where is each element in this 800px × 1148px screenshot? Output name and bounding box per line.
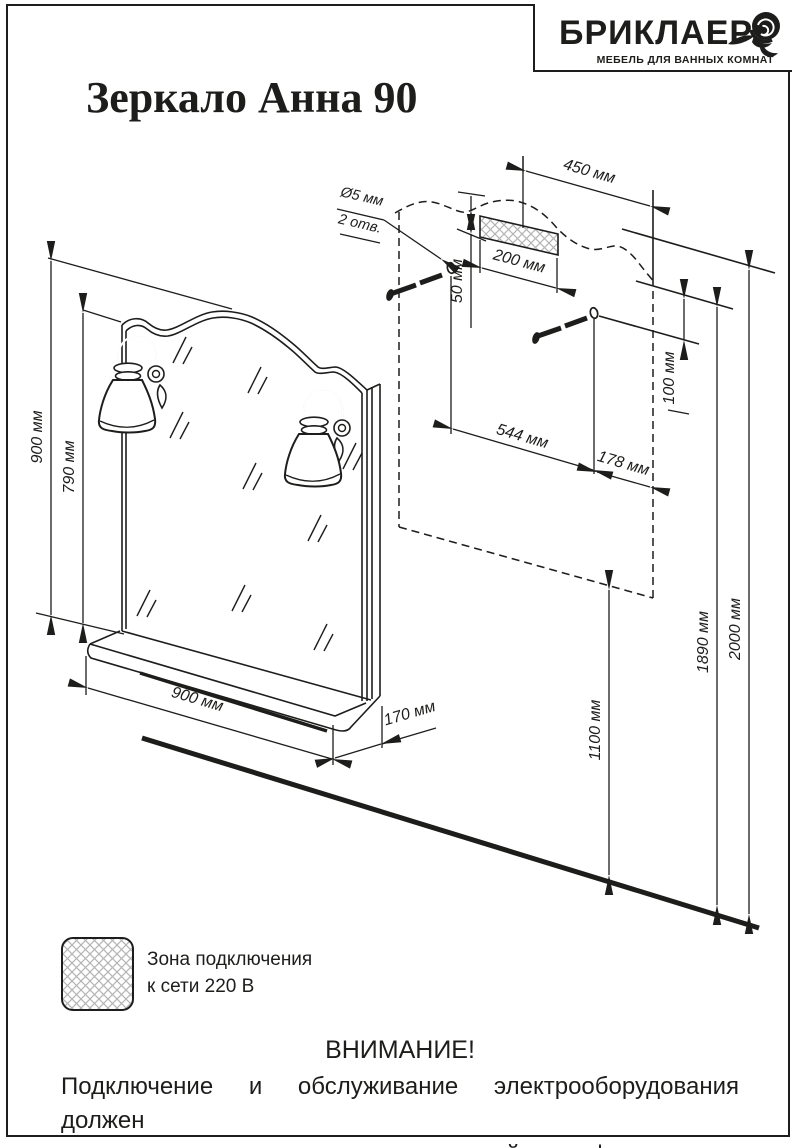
warning-text-line2: выполнять специалист соответствующей ква… <box>61 1138 739 1148</box>
logo-box: БРИКЛАЕР МЕБЕЛЬ ДЛЯ ВАННЫХ КОМНАТ <box>533 4 792 72</box>
lamp-left <box>99 336 166 433</box>
hole-callout: Ø5 мм 2 отв. <box>336 184 441 259</box>
mounting-screws <box>385 262 598 344</box>
dim-1890-label: 1890 мм <box>695 611 712 673</box>
warning-block: ВНИМАНИЕ! Подключение и обслуживание эле… <box>61 1036 739 1148</box>
hole-diameter-label: Ø5 мм <box>338 184 385 210</box>
brand-subtitle: МЕБЕЛЬ ДЛЯ ВАННЫХ КОМНАТ <box>597 54 774 66</box>
floor-line <box>142 738 759 928</box>
dim-450-label: 450 мм <box>561 156 617 187</box>
warning-heading: ВНИМАНИЕ! <box>61 1036 739 1065</box>
mirror-reflection-marks <box>137 337 362 651</box>
mirror-dimensions: 900 мм 790 мм 900 мм 170 мм <box>29 258 438 765</box>
lamp-right <box>285 390 350 487</box>
instruction-sheet: Ø5 мм 2 отв. 450 мм 200 мм 50 мм 544 мм <box>0 0 800 1148</box>
shelf-drawing <box>88 631 380 731</box>
power-zone-hatch <box>480 216 558 255</box>
dim-900-height-label: 900 мм <box>29 410 46 463</box>
dim-790-label: 790 мм <box>61 440 78 493</box>
dim-544-label: 544 мм <box>494 421 550 452</box>
technical-drawing: Ø5 мм 2 отв. 450 мм 200 мм 50 мм 544 мм <box>0 0 800 1148</box>
warning-text-line1: Подключение и обслуживание электрооборуд… <box>61 1070 739 1138</box>
legend-line2: к сети 220 В <box>147 973 312 1000</box>
legend-hatch-swatch <box>62 938 133 1010</box>
dim-2000-label: 2000 мм <box>727 598 744 661</box>
page-title: Зеркало Анна 90 <box>86 72 417 123</box>
wall-hole-icon <box>589 307 599 319</box>
dim-100-label: 100 мм <box>661 351 678 404</box>
legend-line1: Зона подключения <box>147 946 312 973</box>
dim-1100-label: 1100 мм <box>587 700 604 761</box>
dim-170-label: 170 мм <box>382 698 438 729</box>
legend: Зона подключения к сети 220 В <box>147 946 312 1000</box>
hole-count-label: 2 отв. <box>336 211 383 237</box>
